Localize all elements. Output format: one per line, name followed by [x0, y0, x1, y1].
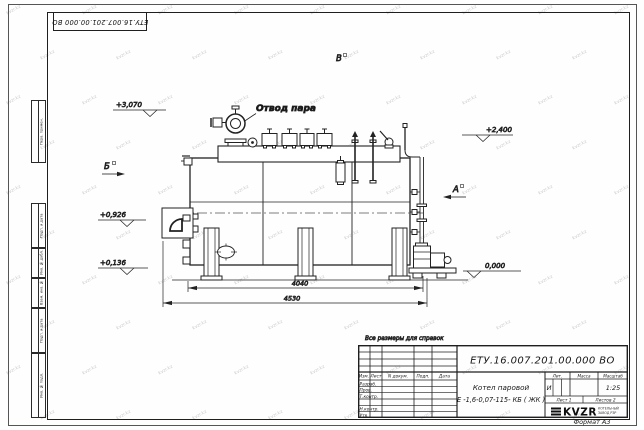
col-izm: Изм. [359, 374, 369, 380]
down-pipe [410, 157, 427, 244]
elevation-0000: 0,000 [463, 262, 521, 278]
format-label: Формат А3 [552, 418, 632, 426]
view-label-a: А [443, 185, 466, 200]
scale-header: Масштаб [603, 374, 623, 379]
feed-pump [409, 243, 456, 278]
elevation-0926: +0,926 [98, 211, 146, 227]
sheets-total: Листов 2 [594, 398, 615, 404]
doc-number: ЕТУ.16.007.201.00.000 ВО [470, 356, 615, 367]
svg-text:А: А [452, 185, 459, 195]
col-data: Дата [438, 374, 450, 380]
elevation-0926-value: +0,926 [100, 211, 126, 219]
reference-note: Все размеры для справок [365, 336, 444, 342]
row-prov: Пров. [360, 388, 373, 394]
title-block: Изм. Лист N докум. Подп. Дата Разраб. Пр… [358, 345, 628, 418]
sheet-number: Лист 1 [556, 398, 572, 404]
mass-header: Масса [577, 374, 591, 379]
product-name-line2: Е -1,6-0,07-115- КБ ( ЖК ) [457, 396, 545, 404]
burner [162, 208, 198, 238]
elevation-2400: +2,400 [462, 126, 513, 142]
dimension-4530-value: 4530 [284, 295, 301, 303]
drum-hatches [262, 129, 332, 148]
row-nkontr: Н.контр. [360, 407, 379, 413]
col-list: Лист [370, 374, 382, 380]
company-line2: ЗАВОД РЗР [598, 411, 616, 415]
dimension-4040-value: 4040 [292, 280, 309, 288]
boiler-body [162, 106, 468, 280]
col-ndoc: N докум. [388, 374, 408, 380]
elevation-3070: +3,070 [113, 101, 166, 117]
row-tkontr: Т.контр. [360, 394, 379, 400]
drawing-sheet: kvzr.kzkvzr.kzkvzr.kzkvzr.kzkvzr.kzkvzr.… [0, 0, 644, 430]
elevation-0000-value: 0,000 [485, 262, 506, 270]
steam-outlet-label: Отвод пара [256, 104, 316, 114]
elevation-3070-value: +3,070 [116, 101, 142, 109]
row-utv: Утв. [360, 413, 369, 418]
col-podp: Подп. [416, 374, 429, 380]
steam-outlet-callout: Отвод пара [244, 104, 316, 122]
product-name-line1: Котел паровой [473, 383, 530, 392]
lit-value: И [547, 384, 552, 392]
elevation-2400-value: +2,400 [486, 126, 512, 134]
row-razrab: Разраб. [360, 381, 377, 387]
steam-outlet-valve [211, 106, 246, 146]
svg-text:Б: Б [104, 162, 110, 172]
scale-value: 1:25 [606, 384, 621, 392]
view-label-b: Б [102, 162, 125, 177]
kvzr-logo: KVZR КОТЕЛЬНЫЙ ЗАВОД РЗР [551, 406, 620, 419]
view-label-v: В [336, 54, 347, 65]
elevation-0136: +0,136 [98, 259, 148, 275]
logo-text: KVZR [563, 407, 597, 419]
level-gauge [336, 156, 345, 185]
elevation-0136-value: +0,136 [100, 259, 126, 267]
lit-header: Лит. [552, 374, 562, 379]
company-line1: КОТЕЛЬНЫЙ [598, 406, 620, 411]
svg-text:В: В [336, 54, 342, 64]
